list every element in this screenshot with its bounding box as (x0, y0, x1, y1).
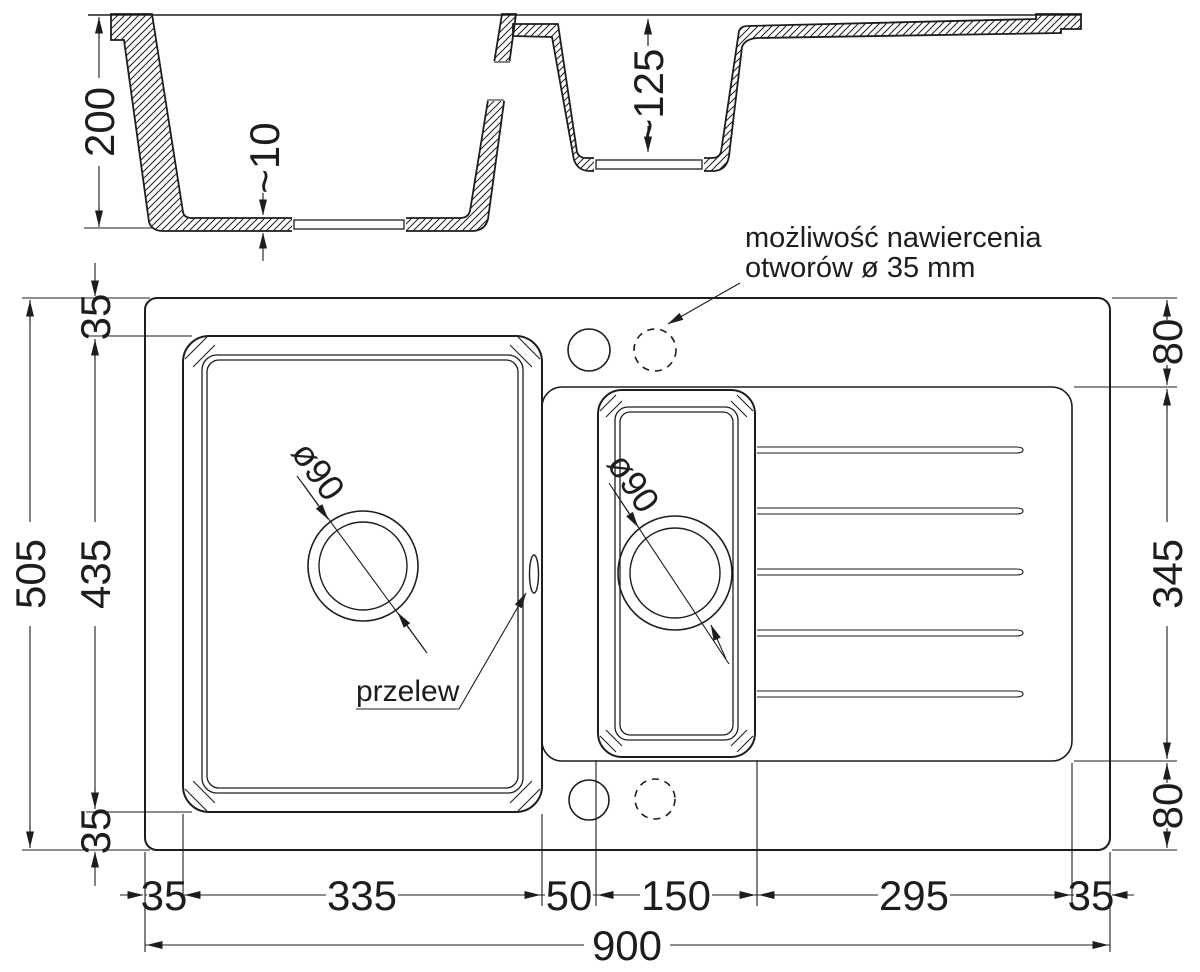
main-bowl-outline (183, 336, 542, 812)
dim-drainer-width: 295 (879, 872, 949, 919)
dim-main-bowl-depth: 200 (76, 87, 123, 157)
note-line2: otworów ø 35 mm (745, 252, 975, 284)
overflow-gap (483, 61, 514, 101)
main-bowl-section-wall (111, 14, 516, 231)
sink-technical-drawing-page: 200 ~10 ~125 (0, 0, 1200, 972)
dim-deck-top: 80 (1144, 319, 1191, 366)
sink-drawing-canvas: 200 ~10 ~125 (0, 0, 1200, 972)
dim-margin-bottom: 35 (72, 808, 119, 855)
dim-main-bowl-width: 335 (327, 872, 397, 919)
dim-margin-left: 35 (141, 872, 188, 919)
dim-drainer-depth: 345 (1144, 539, 1191, 609)
dim-overall-depth: 505 (7, 539, 54, 609)
dim-floor-thickness: ~10 (241, 122, 288, 193)
overflow-label: przelew (356, 675, 460, 708)
dim-bowl-zone-depth: 435 (72, 539, 119, 609)
dim-margin-top: 35 (72, 294, 119, 341)
note-line1: możliwość nawiercenia (745, 222, 1042, 254)
small-bowl-drainer-section-wall (513, 14, 1081, 171)
plan-view: przelew możliwość nawiercenia otworów ø … (145, 222, 1110, 850)
dim-divider-width: 50 (546, 872, 593, 919)
dim-small-bowl-width: 150 (641, 872, 711, 919)
small-drain-plate (596, 160, 702, 169)
dim-margin-right: 35 (1068, 872, 1115, 919)
dim-deck-bottom: 80 (1144, 783, 1191, 830)
dim-overall-width: 900 (592, 922, 662, 969)
overflow-slot (530, 555, 539, 593)
dim-small-bowl-depth: ~125 (625, 49, 672, 144)
main-drain-plate (294, 220, 404, 229)
